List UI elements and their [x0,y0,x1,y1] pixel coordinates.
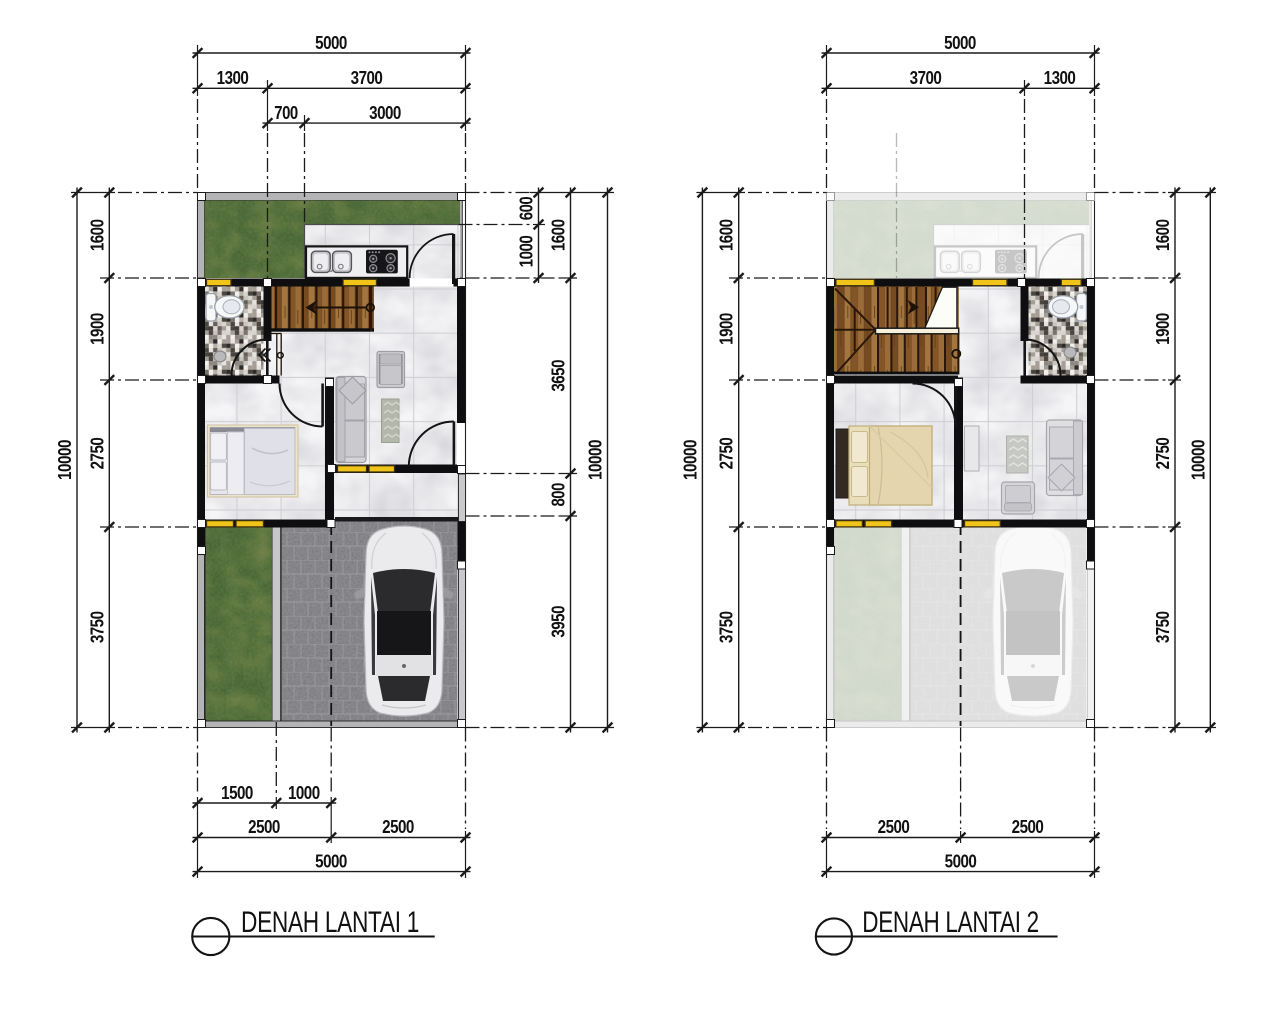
svg-text:2750: 2750 [1153,437,1173,469]
svg-text:3650: 3650 [549,359,569,391]
svg-text:1900: 1900 [87,313,107,345]
svg-text:3700: 3700 [351,68,383,88]
svg-text:600: 600 [517,196,537,220]
svg-text:2750: 2750 [87,437,107,469]
svg-text:3750: 3750 [1153,611,1173,643]
svg-text:1600: 1600 [549,219,569,251]
svg-text:10000: 10000 [55,440,75,480]
svg-text:3950: 3950 [549,605,569,637]
svg-text:10000: 10000 [586,440,606,480]
svg-text:1600: 1600 [717,219,737,251]
svg-text:5000: 5000 [315,33,347,53]
svg-text:2750: 2750 [717,437,737,469]
svg-text:DENAH LANTAI 1: DENAH LANTAI 1 [241,906,419,939]
svg-text:10000: 10000 [1188,440,1208,480]
svg-text:1000: 1000 [517,235,537,267]
svg-text:1000: 1000 [288,783,320,803]
svg-text:2500: 2500 [248,817,280,837]
svg-text:700: 700 [274,103,298,123]
svg-text:2500: 2500 [878,817,910,837]
svg-text:1900: 1900 [717,313,737,345]
svg-text:3750: 3750 [717,611,737,643]
svg-text:800: 800 [549,483,569,507]
svg-text:5000: 5000 [945,852,977,872]
svg-text:1600: 1600 [87,219,107,251]
svg-text:2500: 2500 [382,817,414,837]
svg-text:3750: 3750 [87,611,107,643]
svg-text:3000: 3000 [369,103,401,123]
svg-text:1600: 1600 [1153,219,1173,251]
svg-text:5000: 5000 [315,852,347,872]
svg-text:5000: 5000 [944,33,976,53]
svg-text:1900: 1900 [1153,313,1173,345]
svg-text:1300: 1300 [1044,68,1076,88]
svg-text:DENAH LANTAI 2: DENAH LANTAI 2 [862,906,1039,939]
svg-text:1300: 1300 [217,68,249,88]
svg-text:1500: 1500 [221,783,253,803]
svg-text:10000: 10000 [680,440,700,480]
svg-text:2500: 2500 [1012,817,1044,837]
svg-text:3700: 3700 [910,68,942,88]
